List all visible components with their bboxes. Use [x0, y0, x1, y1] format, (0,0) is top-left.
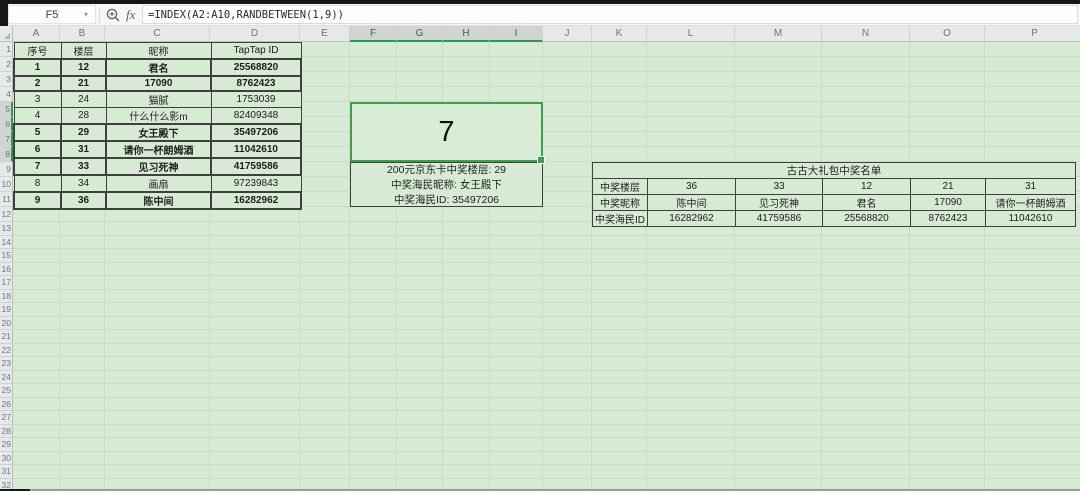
formula-bar-divider [99, 7, 100, 23]
row-header-21[interactable]: 21 [0, 330, 13, 344]
row-header-6[interactable]: 6 [0, 117, 13, 132]
right-table-cell[interactable]: 25568820 [823, 211, 911, 227]
left-table-cell[interactable]: 82409348 [211, 108, 301, 125]
left-table-cell[interactable]: 陈中间 [106, 192, 211, 209]
left-table-cell[interactable]: 8 [14, 175, 61, 192]
left-table-cell[interactable]: 34 [61, 175, 106, 192]
left-table-cell[interactable]: 3 [14, 91, 61, 108]
row-header-8[interactable]: 8 [0, 147, 13, 162]
right-table-cell[interactable]: 陈中间 [648, 195, 736, 211]
right-table-row-label[interactable]: 中奖海民ID [593, 211, 648, 227]
right-table-row: 中奖楼层3633122131 [593, 179, 1076, 195]
row-header-13[interactable]: 13 [0, 222, 13, 236]
column-header-M[interactable]: M [735, 26, 822, 42]
row-header-31[interactable]: 31 [0, 465, 13, 479]
left-table-cell[interactable]: 请你一杯朗姆酒 [106, 141, 211, 158]
right-table-cell[interactable]: 33 [736, 179, 823, 195]
column-header-A[interactable]: A [13, 26, 60, 42]
left-table-row: 631请你一杯朗姆酒11042610 [14, 141, 301, 158]
fill-handle[interactable] [537, 156, 545, 164]
row-header-11[interactable]: 11 [0, 192, 13, 207]
left-table-row: 112君名25568820 [14, 59, 301, 76]
gridline-horizontal [13, 370, 1080, 371]
row-header-18[interactable]: 18 [0, 290, 13, 304]
gridline-horizontal [13, 424, 1080, 425]
row-header-7[interactable]: 7 [0, 132, 13, 147]
gridline-horizontal [13, 275, 1080, 276]
left-table-cell[interactable]: 4 [14, 108, 61, 125]
left-table-cell[interactable]: 21 [61, 76, 106, 91]
left-table-cell[interactable]: 24 [61, 91, 106, 108]
row-header-15[interactable]: 15 [0, 249, 13, 263]
left-table-cell[interactable]: 12 [61, 59, 106, 76]
right-table-title-row: 古古大礼包中奖名单 [593, 163, 1076, 179]
column-header-F[interactable]: F [350, 26, 397, 42]
right-table-cell[interactable]: 8762423 [911, 211, 986, 227]
left-table: 序号楼层昵称TapTap ID112君名25568820221170908762… [13, 42, 302, 210]
gridline-horizontal [13, 343, 1080, 344]
row-header-25[interactable]: 25 [0, 384, 13, 398]
column-header-N[interactable]: N [822, 26, 910, 42]
gridline-horizontal [13, 451, 1080, 452]
window-left-edge [0, 0, 8, 26]
left-table-cell[interactable]: 什么什么影m [106, 108, 211, 125]
right-table-row: 中奖昵称陈中间见习死神君名17090请你一杯朗姆酒 [593, 195, 1076, 211]
gridline-horizontal [13, 248, 1080, 249]
row-header-3[interactable]: 3 [0, 72, 13, 87]
column-header-J[interactable]: J [543, 26, 592, 42]
row-header-27[interactable]: 27 [0, 411, 13, 425]
gridline-horizontal [13, 302, 1080, 303]
left-table-row: 936陈中间16282962 [14, 192, 301, 209]
right-table: 古古大礼包中奖名单中奖楼层3633122131中奖昵称陈中间见习死神君名1709… [592, 162, 1076, 227]
left-table-cell[interactable]: 29 [61, 124, 106, 141]
right-table-cell[interactable]: 21 [911, 179, 986, 195]
left-table-cell[interactable]: 画扇 [106, 175, 211, 192]
left-table-cell[interactable]: 97239843 [211, 175, 301, 192]
name-box-dropdown-icon[interactable]: ▾ [84, 8, 88, 22]
left-table-cell[interactable]: 41759586 [211, 158, 301, 175]
gridline-horizontal [13, 235, 1080, 236]
row-header-2[interactable]: 2 [0, 57, 13, 72]
gridline-horizontal [13, 329, 1080, 330]
select-all-button[interactable] [0, 26, 13, 42]
column-header-D[interactable]: D [210, 26, 300, 42]
sheet-grid[interactable]: 200元京东卡中奖楼层: 29中奖海民昵称: 女王殿下中奖海民ID: 35497… [0, 42, 1080, 491]
left-table-row: 221170908762423 [14, 76, 301, 91]
row-header-28[interactable]: 28 [0, 425, 13, 439]
left-table-cell[interactable]: 1 [14, 59, 61, 76]
right-table-row-label[interactable]: 中奖昵称 [593, 195, 648, 211]
row-header-19[interactable]: 19 [0, 303, 13, 317]
column-header-B[interactable]: B [60, 26, 105, 42]
left-table-header-row: 序号楼层昵称TapTap ID [14, 43, 301, 60]
row-header-30[interactable]: 30 [0, 452, 13, 466]
right-table-cell[interactable]: 请你一杯朗姆酒 [986, 195, 1076, 211]
row-header-26[interactable]: 26 [0, 398, 13, 412]
left-table-row: 733见习死神41759586 [14, 158, 301, 175]
left-table-cell[interactable]: 1753039 [211, 91, 301, 108]
row-header-14[interactable]: 14 [0, 236, 13, 250]
gridline-horizontal [13, 262, 1080, 263]
left-table-header-cell[interactable]: 序号 [14, 43, 61, 60]
left-table-row: 324猫腻1753039 [14, 91, 301, 108]
gridline-horizontal [13, 316, 1080, 317]
left-table-row: 428什么什么影m82409348 [14, 108, 301, 125]
left-table-cell[interactable]: 5 [14, 124, 61, 141]
left-table-cell[interactable]: 17090 [106, 76, 211, 91]
left-table-cell[interactable]: 2 [14, 76, 61, 91]
left-table-cell[interactable]: 9 [14, 192, 61, 209]
row-header-5[interactable]: 5 [0, 102, 13, 117]
selected-merged-cell-F5[interactable]: 7 [350, 102, 543, 162]
select-all-icon [4, 33, 10, 39]
row-header-9[interactable]: 9 [0, 162, 13, 177]
right-table-cell[interactable]: 11042610 [986, 211, 1076, 227]
right-table-cell[interactable]: 见习死神 [736, 195, 823, 211]
gridline-horizontal [13, 410, 1080, 411]
gridline-horizontal [13, 437, 1080, 438]
formula-input[interactable]: =INDEX(A2:A10,RANDBETWEEN(1,9)) [142, 5, 1078, 24]
left-table-cell[interactable]: 28 [61, 108, 106, 125]
prize-info-box[interactable]: 200元京东卡中奖楼层: 29中奖海民昵称: 女王殿下中奖海民ID: 35497… [350, 162, 543, 207]
right-table-title: 古古大礼包中奖名单 [593, 163, 1076, 179]
left-table-cell[interactable]: 6 [14, 141, 61, 158]
row-header-24[interactable]: 24 [0, 371, 13, 385]
prize-info-line: 中奖海民ID: 35497206 [351, 193, 542, 208]
right-table-cell[interactable]: 17090 [911, 195, 986, 211]
right-table-cell[interactable]: 41759586 [736, 211, 823, 227]
zoom-magnifier-icon[interactable] [105, 7, 121, 23]
row-header-16[interactable]: 16 [0, 263, 13, 277]
column-header-C[interactable]: C [105, 26, 210, 42]
left-table-cell[interactable]: 33 [61, 158, 106, 175]
fx-insert-function-icon[interactable]: fx [126, 6, 142, 24]
column-header-L[interactable]: L [647, 26, 735, 42]
row-header-22[interactable]: 22 [0, 344, 13, 358]
column-header-P[interactable]: P [985, 26, 1080, 42]
column-header-K[interactable]: K [592, 26, 647, 42]
gridline-horizontal [13, 478, 1080, 479]
left-table-cell[interactable]: 君名 [106, 59, 211, 76]
gridline-horizontal [13, 464, 1080, 465]
row-header-10[interactable]: 10 [0, 177, 13, 192]
row-header-20[interactable]: 20 [0, 317, 13, 331]
left-table-cell[interactable]: 8762423 [211, 76, 301, 91]
gridline-horizontal [13, 383, 1080, 384]
gridline-horizontal [13, 397, 1080, 398]
row-header-17[interactable]: 17 [0, 276, 13, 290]
right-table-row: 中奖海民ID1628296241759586255688208762423110… [593, 211, 1076, 227]
left-table-cell[interactable]: 女王殿下 [106, 124, 211, 141]
gridline-horizontal [13, 356, 1080, 357]
right-table-cell[interactable]: 31 [986, 179, 1076, 195]
row-header-4[interactable]: 4 [0, 87, 13, 102]
row-header-12[interactable]: 12 [0, 207, 13, 222]
column-header-row: ABCDEFGHIJKLMNOP [0, 26, 1080, 42]
right-table-cell[interactable]: 16282962 [648, 211, 736, 227]
right-table-row-label[interactable]: 中奖楼层 [593, 179, 648, 195]
formula-bar: F5 ▾ fx =INDEX(A2:A10,RANDBETWEEN(1,9)) [0, 4, 1080, 26]
spreadsheet-app-window: F5 ▾ fx =INDEX(A2:A10,RANDBETWEEN(1,9)) … [0, 0, 1080, 491]
left-table-cell[interactable]: 见习死神 [106, 158, 211, 175]
prize-info-line: 200元京东卡中奖楼层: 29 [351, 163, 542, 178]
draw-result-value: 7 [438, 118, 454, 147]
left-table-cell[interactable]: 11042610 [211, 141, 301, 158]
prize-info-line: 中奖海民昵称: 女王殿下 [351, 178, 542, 193]
column-header-I[interactable]: I [490, 26, 543, 42]
left-table-header-cell[interactable]: 昵称 [106, 43, 211, 60]
row-header-23[interactable]: 23 [0, 357, 13, 371]
left-table-header-cell[interactable]: TapTap ID [211, 43, 301, 60]
column-header-G[interactable]: G [397, 26, 443, 42]
right-table-cell[interactable]: 36 [648, 179, 736, 195]
column-header-O[interactable]: O [910, 26, 985, 42]
cell-name-box[interactable]: F5 [8, 5, 96, 24]
row-header-29[interactable]: 29 [0, 438, 13, 452]
left-table-cell[interactable]: 7 [14, 158, 61, 175]
left-table-cell[interactable]: 25568820 [211, 59, 301, 76]
left-table-cell[interactable]: 31 [61, 141, 106, 158]
right-table-cell[interactable]: 君名 [823, 195, 911, 211]
left-table-cell[interactable]: 35497206 [211, 124, 301, 141]
left-table-row: 529女王殿下35497206 [14, 124, 301, 141]
right-table-cell[interactable]: 12 [823, 179, 911, 195]
column-header-H[interactable]: H [443, 26, 490, 42]
gridline-horizontal [13, 289, 1080, 290]
left-table-cell[interactable]: 猫腻 [106, 91, 211, 108]
left-table-row: 834画扇97239843 [14, 175, 301, 192]
row-header-1[interactable]: 1 [0, 42, 13, 57]
left-table-header-cell[interactable]: 楼层 [61, 43, 106, 60]
left-table-cell[interactable]: 16282962 [211, 192, 301, 209]
left-table-cell[interactable]: 36 [61, 192, 106, 209]
column-header-E[interactable]: E [300, 26, 350, 42]
